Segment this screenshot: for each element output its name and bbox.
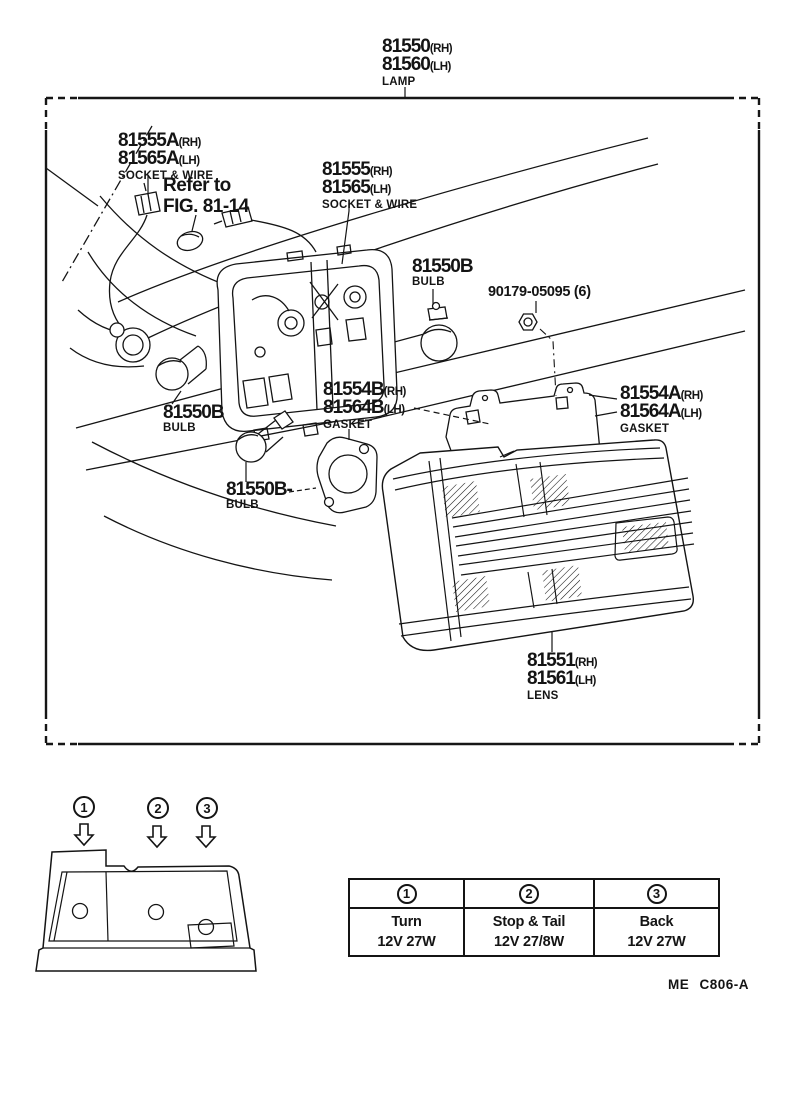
page-code: ME C806-A	[668, 977, 749, 992]
gasket-b-drawing	[317, 437, 377, 513]
part-desc: SOCKET & WIRE	[322, 199, 417, 211]
part-desc: GASKET	[323, 419, 406, 431]
label-nut: 90179-05095 (6)	[488, 284, 591, 300]
legend-cell-turn: Turn 12V 27W	[350, 909, 465, 955]
inset-down-arrows	[75, 824, 215, 847]
part-desc: BULB	[412, 276, 473, 288]
legend-header-1: 1	[350, 880, 465, 909]
part-desc: BULB	[226, 499, 292, 511]
label-lamp: 81550(RH) 81560(LH) LAMP	[382, 39, 452, 88]
part-desc: LAMP	[382, 76, 452, 88]
legend-cell-back: Back 12V 27W	[595, 909, 718, 955]
part-number: 81560	[382, 54, 430, 75]
label-refer-note: Refer to FIG. 81-14	[163, 175, 249, 217]
bulb-function: Back	[640, 912, 674, 932]
circled-number-3: 3	[647, 884, 667, 904]
label-bulb-mid: 81550B- BULB	[226, 482, 292, 511]
label-bulb-top: 81550B BULB	[412, 259, 473, 288]
label-gasket-b: 81554B(RH) 81564B(LH) GASKET	[323, 382, 406, 431]
part-number: 81550B	[163, 402, 224, 423]
part-number: 81561	[527, 668, 575, 689]
bulb-left-drawing	[156, 346, 206, 390]
bulb-spec: 12V 27W	[377, 932, 435, 952]
bulb-top-drawing	[421, 303, 457, 362]
grommet-part	[175, 228, 205, 253]
legend-header-2: 2	[465, 880, 595, 909]
bulb-spec: 12V 27/8W	[494, 932, 564, 952]
inset-callout-1: 1	[73, 796, 95, 818]
part-desc: LENS	[527, 690, 597, 702]
label-bulb-left: 81550B BULB	[163, 405, 224, 434]
part-number: 81564B	[323, 397, 384, 418]
inset-callout-2: 2	[147, 797, 169, 819]
part-number: 81565	[322, 177, 370, 198]
inset-callout-3: 3	[196, 797, 218, 819]
label-lens: 81551(RH) 81561(LH) LENS	[527, 653, 597, 702]
wire-connector-1	[135, 192, 160, 215]
legend-header-3: 3	[595, 880, 718, 909]
part-number: 81550B-	[226, 479, 292, 500]
parts-catalog-page: 81550(RH) 81560(LH) LAMP 81555A(RH) 8156…	[0, 0, 800, 1098]
circled-number-2: 2	[519, 884, 539, 904]
part-desc: GASKET	[620, 423, 703, 435]
bulb-function: Stop & Tail	[493, 912, 565, 932]
bulb-legend-table: 1 2 3 Turn 12V 27W Stop & Tail 12V 27/8W…	[348, 878, 720, 957]
bulb-function: Turn	[391, 912, 421, 932]
circled-number-1: 1	[397, 884, 417, 904]
inset-lamp-rear-view	[36, 824, 256, 971]
legend-cell-stop-tail: Stop & Tail 12V 27/8W	[465, 909, 595, 955]
part-number: 81564A	[620, 401, 681, 422]
label-gasket-a: 81554A(RH) 81564A(LH) GASKET	[620, 386, 703, 435]
part-number: 81565A	[118, 148, 179, 169]
bulb-spec: 12V 27W	[627, 932, 685, 952]
part-number: 90179-05095 (6)	[488, 284, 591, 300]
part-number: 81550B	[412, 256, 473, 277]
part-desc: BULB	[163, 422, 224, 434]
label-socket-wire: 81555(RH) 81565(LH) SOCKET & WIRE	[322, 162, 417, 211]
lens-drawing	[382, 440, 694, 651]
